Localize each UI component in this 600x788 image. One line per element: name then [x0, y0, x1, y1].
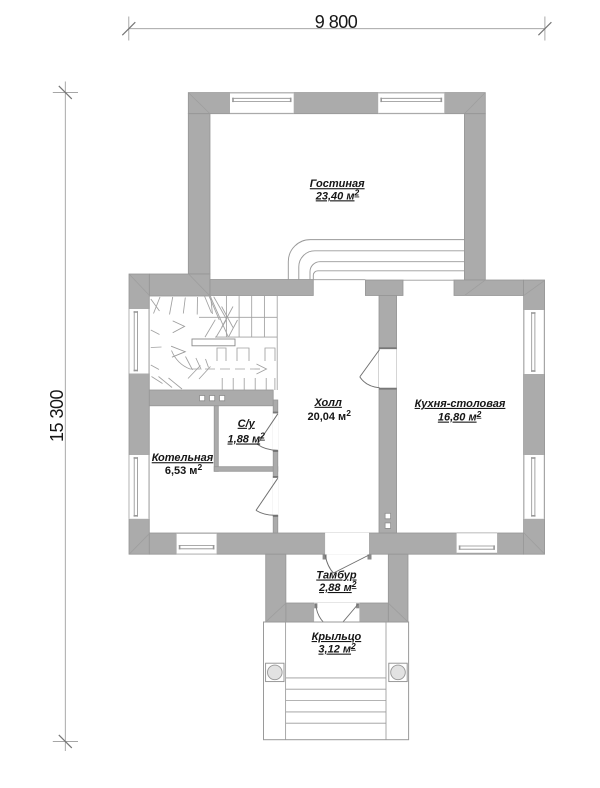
svg-text:Котельная: Котельная — [152, 452, 214, 464]
svg-text:Кухня-столовая: Кухня-столовая — [415, 398, 506, 410]
svg-text:1,88 м2: 1,88 м2 — [228, 431, 266, 446]
svg-text:2,88 м2: 2,88 м2 — [318, 579, 357, 594]
svg-text:Холл: Холл — [314, 397, 342, 409]
svg-text:16,80 м2: 16,80 м2 — [438, 409, 482, 424]
svg-text:20,04 м2: 20,04 м2 — [307, 408, 351, 423]
svg-text:23,40 м2: 23,40 м2 — [315, 188, 360, 203]
svg-text:3,12 м2: 3,12 м2 — [318, 641, 356, 656]
svg-text:6,53 м2: 6,53 м2 — [165, 462, 203, 477]
svg-text:15 300: 15 300 — [47, 389, 67, 442]
svg-text:С/у: С/у — [238, 418, 256, 430]
svg-text:9 800: 9 800 — [315, 12, 358, 32]
